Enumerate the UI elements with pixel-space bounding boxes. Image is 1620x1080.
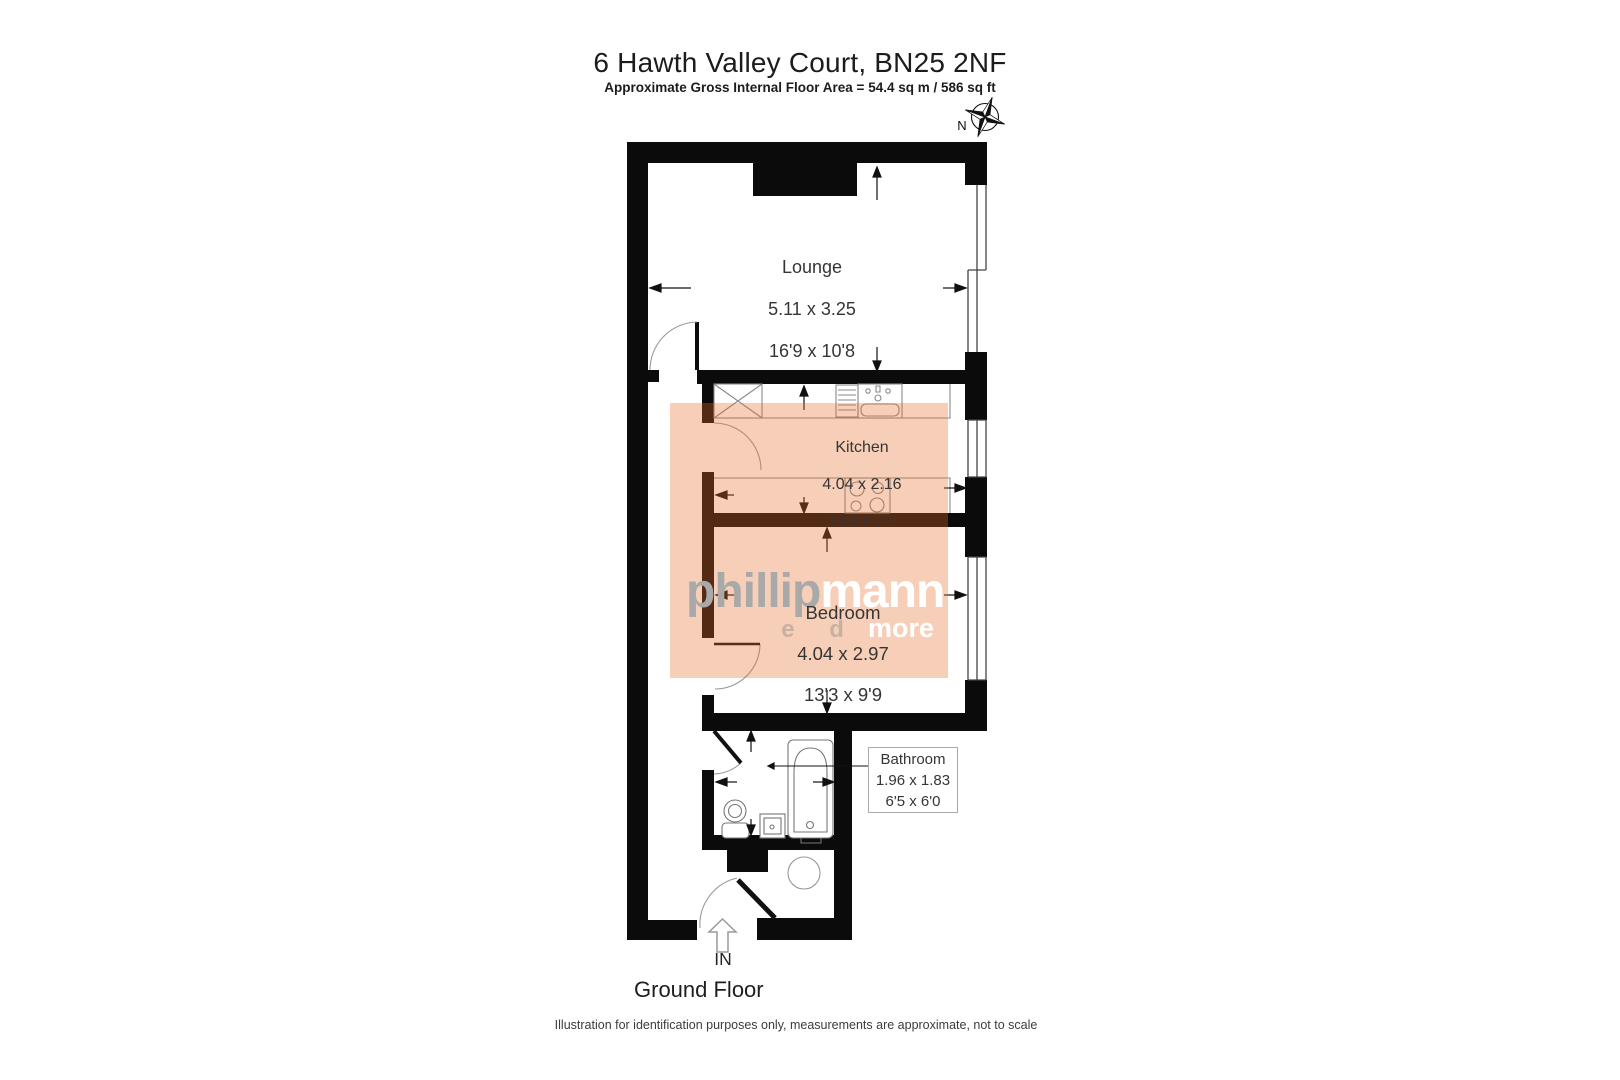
bedroom-room-label: Bedroom 4.04 x 2.97 13'3 x 9'9 [763,582,923,726]
floor-name-label: Ground Floor [634,977,764,1003]
entrance-in-label: IN [698,950,748,969]
bathtub-icon [788,740,833,843]
compass-north-label: N [950,119,974,133]
chimney-breast [753,163,857,196]
floor-area-subtitle: Approximate Gross Internal Floor Area = … [400,80,1200,95]
compass-rose-icon [958,90,1012,144]
bathroom-door-arc [714,763,741,774]
bedroom-window [968,557,986,680]
entrance-in-arrow-icon [709,919,736,952]
lounge-window [968,185,986,352]
bathroom-metric-dimensions: 1.96 x 1.83 [869,770,957,791]
lounge-metric-dimensions: 5.11 x 3.25 [732,299,892,320]
windows [968,185,986,680]
entrance-door-leaf [738,880,775,918]
page: { "header": { "title": "6 Hawth Valley C… [0,0,1620,1080]
entrance-door-arc [700,878,737,928]
kitchen-imperial-dimensions: 13'3 x 7'1 [782,513,942,532]
storage-tank-icon [788,857,820,889]
bedroom-metric-dimensions: 4.04 x 2.97 [763,644,923,665]
lounge-door-leaf [695,322,699,370]
bathroom-name: Bathroom [869,749,957,770]
disclaimer-text: Illustration for identification purposes… [296,1018,1296,1033]
lounge-name: Lounge [732,257,892,278]
bathroom-door-leaf [714,731,741,763]
lounge-imperial-dimensions: 16'9 x 10'8 [732,341,892,362]
kitchen-name: Kitchen [782,439,942,458]
bathroom-room-label: Bathroom 1.96 x 1.83 6'5 x 6'0 [868,747,958,813]
lounge-door-arc [650,322,697,370]
bedroom-imperial-dimensions: 13'3 x 9'9 [763,685,923,706]
kitchen-metric-dimensions: 4.04 x 2.16 [782,476,942,495]
kitchen-room-label: Kitchen 4.04 x 2.16 13'3 x 7'1 [782,420,942,550]
kitchen-window [968,420,986,477]
bathroom-imperial-dimensions: 6'5 x 6'0 [869,791,957,812]
basin-icon [760,814,785,838]
bedroom-name: Bedroom [763,603,923,624]
page-title: 6 Hawth Valley Court, BN25 2NF [400,47,1200,79]
toilet-icon [722,800,749,838]
lounge-room-label: Lounge 5.11 x 3.25 16'9 x 10'8 [732,236,892,383]
